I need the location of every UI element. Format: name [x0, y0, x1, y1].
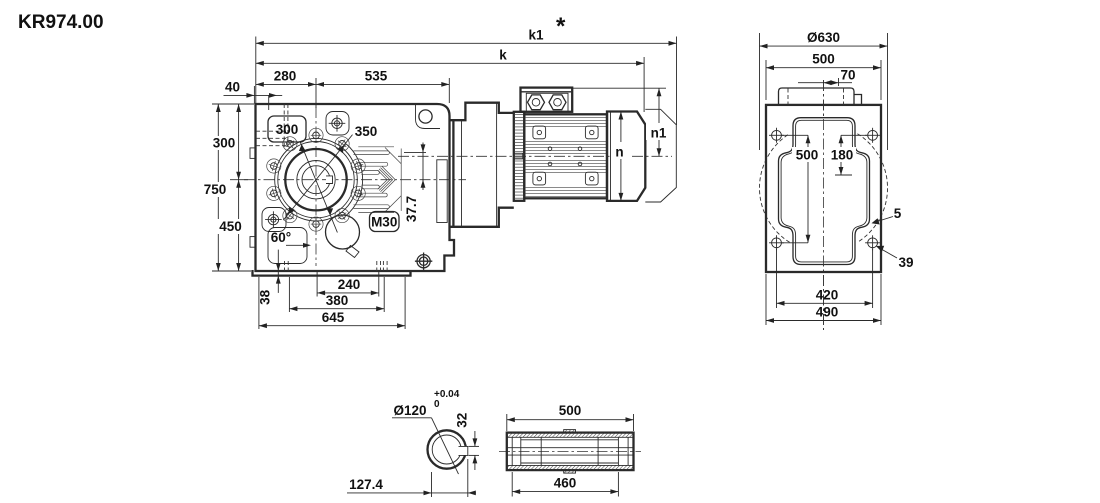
svg-text:39: 39 — [898, 255, 913, 270]
svg-text:300: 300 — [276, 122, 299, 137]
svg-text:500: 500 — [559, 403, 582, 418]
svg-text:535: 535 — [365, 69, 388, 84]
svg-text:300: 300 — [213, 136, 236, 151]
svg-text:490: 490 — [816, 305, 839, 320]
svg-text:*: * — [556, 13, 566, 40]
svg-text:M30: M30 — [371, 215, 397, 230]
svg-text:38: 38 — [258, 289, 273, 305]
svg-text:Ø630: Ø630 — [807, 30, 840, 45]
svg-text:450: 450 — [219, 219, 242, 234]
svg-text:n1: n1 — [651, 126, 667, 141]
svg-text:500: 500 — [812, 52, 835, 67]
svg-text:0: 0 — [434, 399, 440, 410]
svg-text:380: 380 — [326, 293, 349, 308]
svg-text:350: 350 — [355, 124, 378, 139]
svg-text:KR974.00: KR974.00 — [18, 12, 104, 33]
svg-text:60°: 60° — [271, 230, 291, 245]
svg-text:k1: k1 — [528, 28, 544, 43]
svg-text:k: k — [499, 48, 507, 63]
svg-text:180: 180 — [831, 148, 854, 163]
svg-text:460: 460 — [554, 476, 577, 491]
svg-text:240: 240 — [338, 277, 361, 292]
svg-text:40: 40 — [225, 80, 240, 95]
svg-text:Ø120: Ø120 — [393, 403, 426, 418]
svg-text:500: 500 — [796, 148, 819, 163]
svg-text:n: n — [615, 145, 623, 160]
svg-text:37.7: 37.7 — [404, 196, 419, 222]
svg-text:420: 420 — [816, 287, 839, 302]
svg-text:280: 280 — [274, 69, 297, 84]
svg-text:127.4: 127.4 — [349, 477, 383, 492]
svg-text:750: 750 — [204, 182, 227, 197]
svg-text:645: 645 — [322, 310, 345, 325]
svg-text:5: 5 — [894, 206, 902, 221]
svg-text:70: 70 — [840, 68, 855, 83]
svg-text:32: 32 — [455, 413, 470, 428]
